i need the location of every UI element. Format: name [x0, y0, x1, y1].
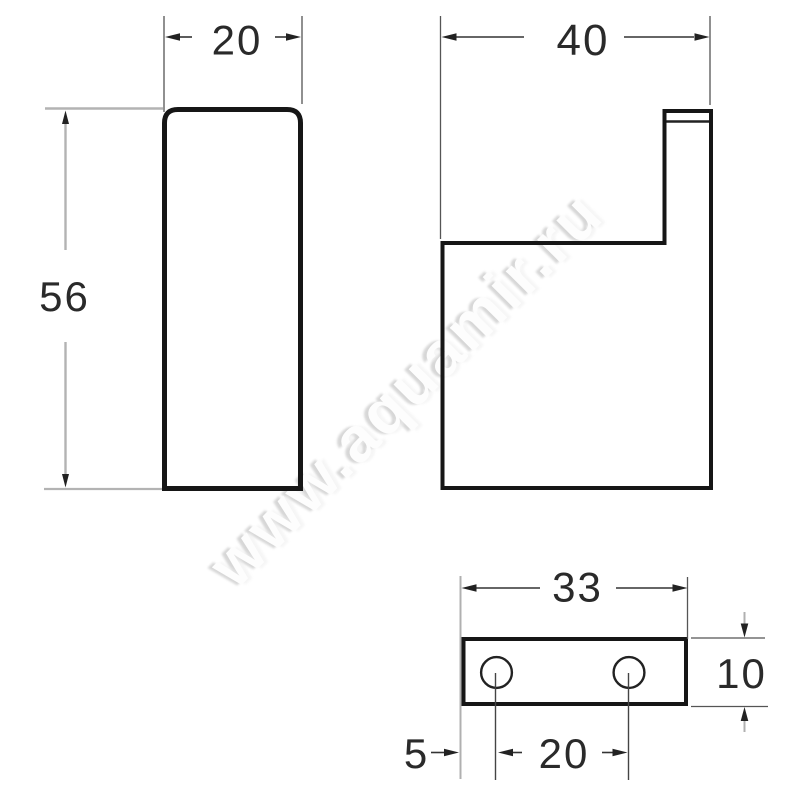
svg-text:40: 40	[557, 16, 610, 65]
svg-text:5: 5	[404, 730, 427, 777]
svg-text:10: 10	[716, 650, 767, 697]
svg-text:56: 56	[39, 273, 90, 320]
svg-text:33: 33	[552, 564, 603, 611]
svg-text:20: 20	[539, 730, 590, 777]
svg-text:20: 20	[212, 17, 263, 64]
